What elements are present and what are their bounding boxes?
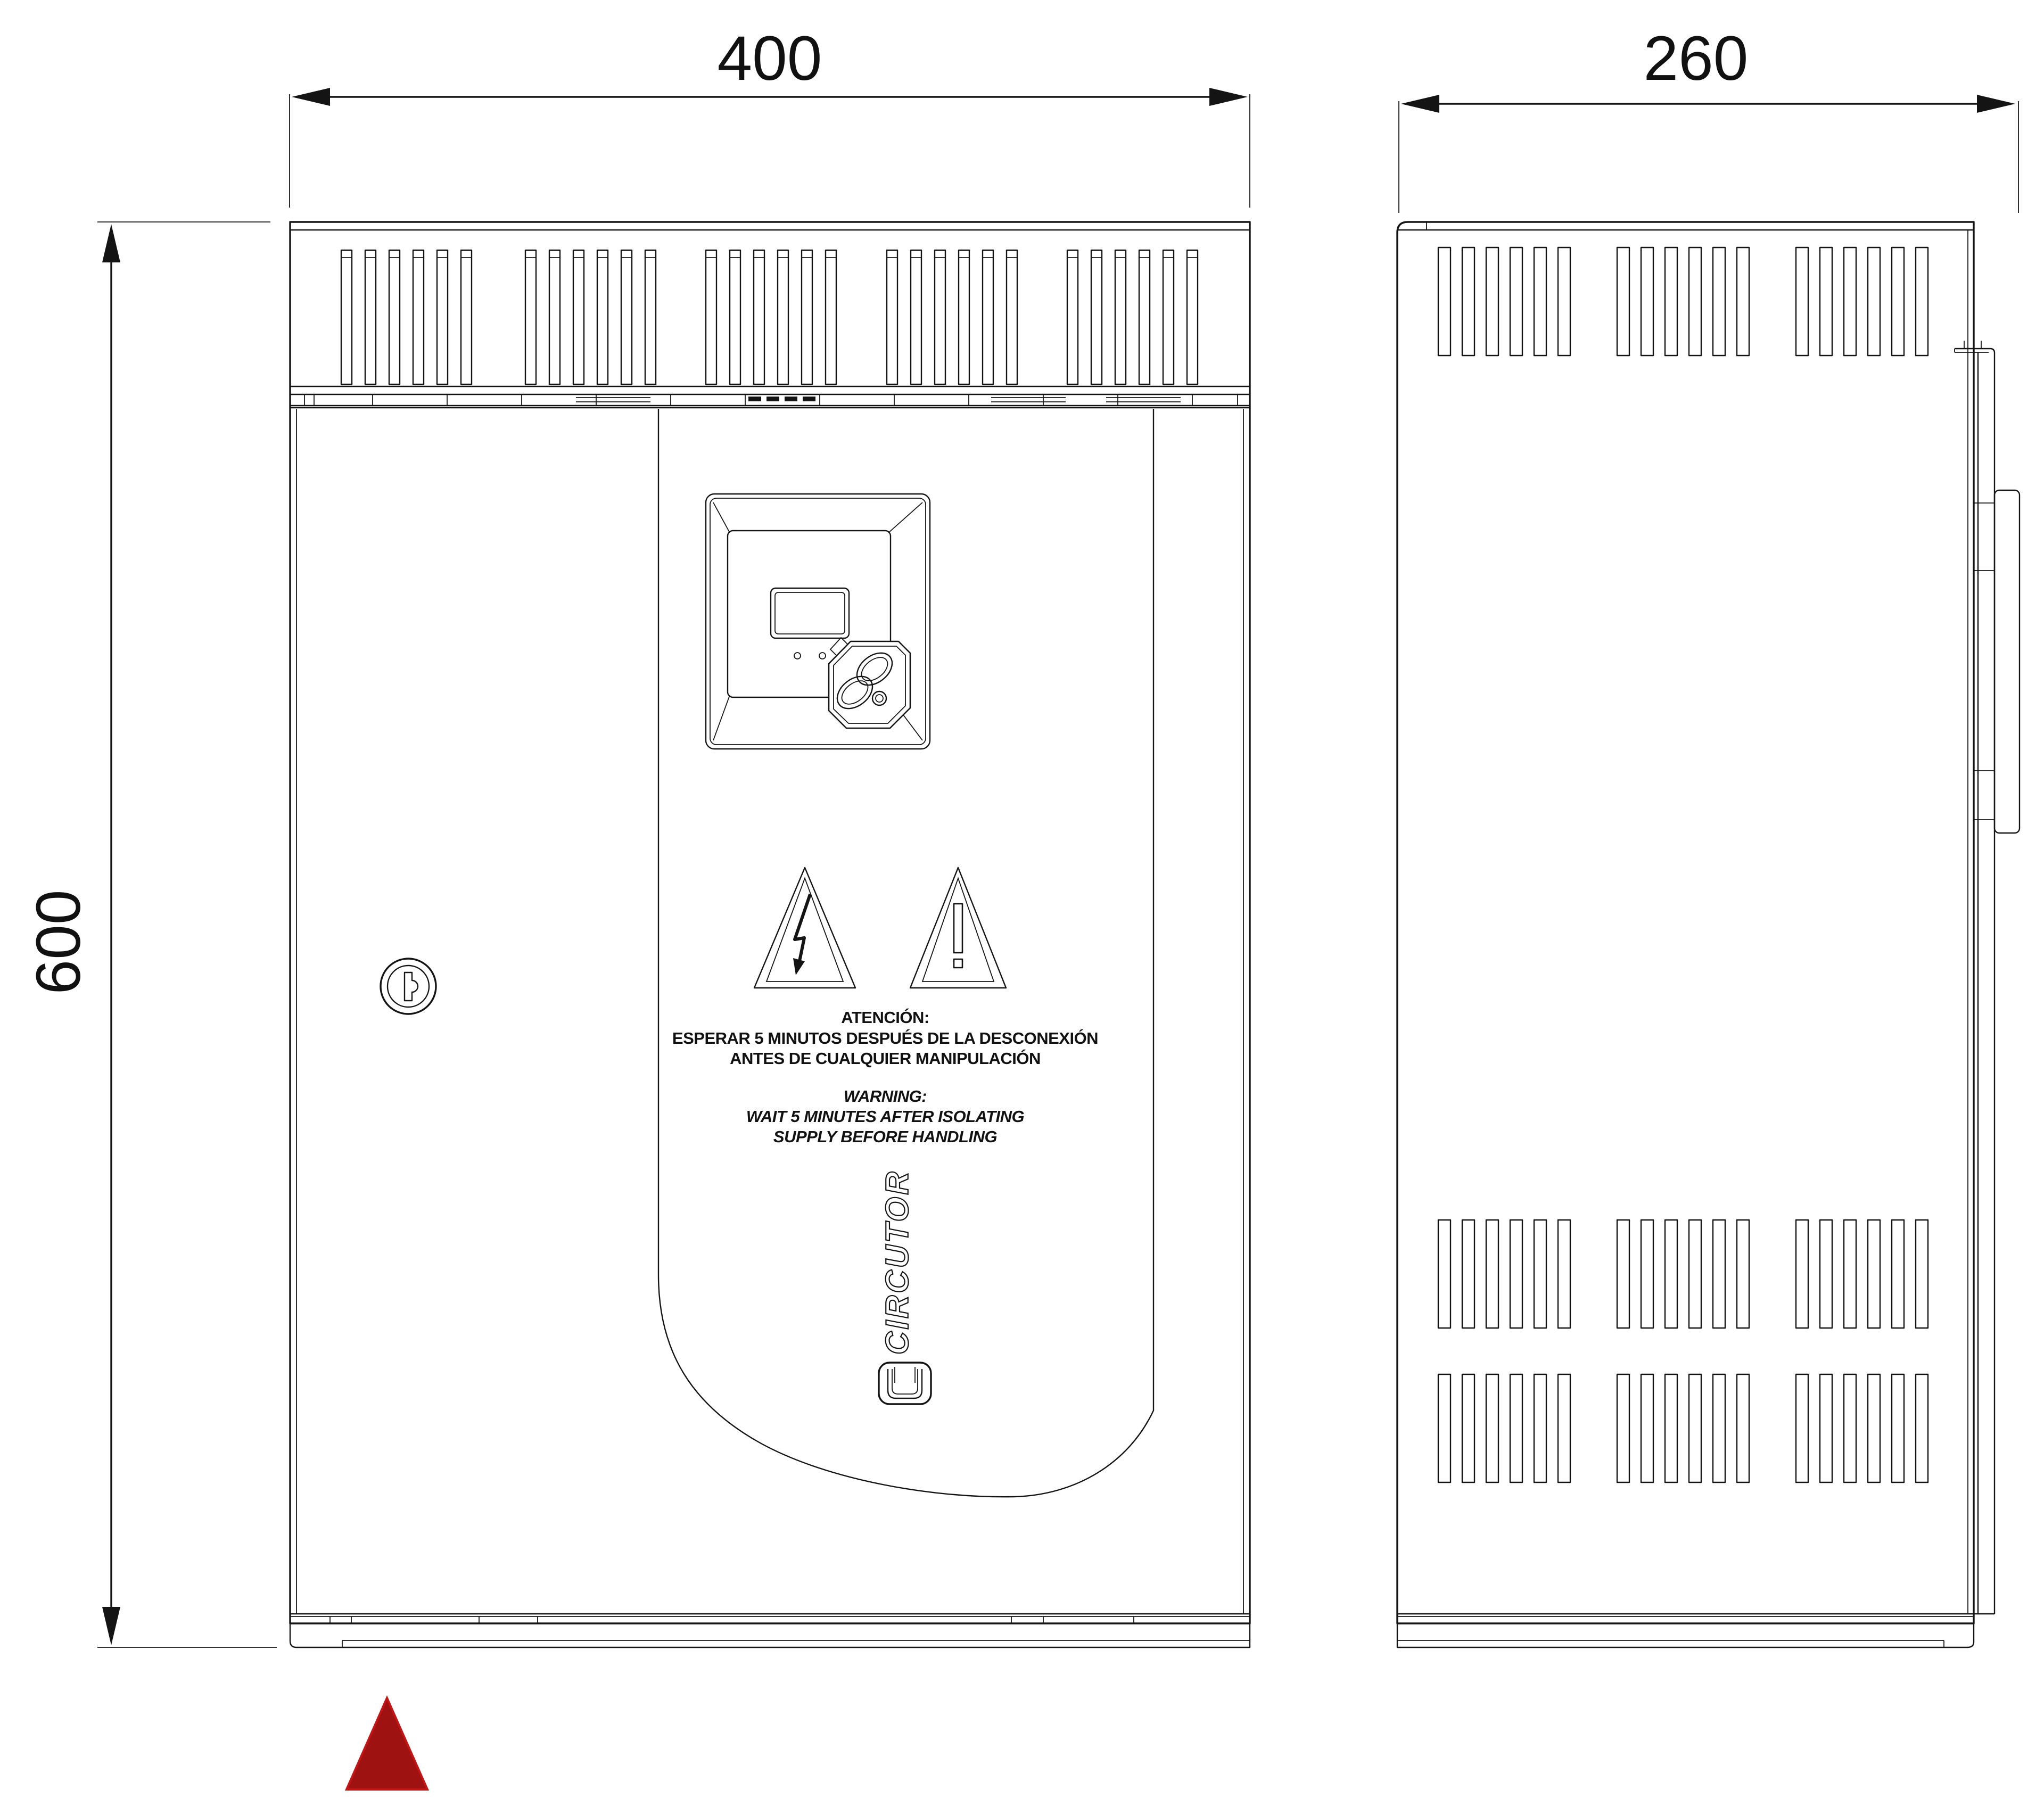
vent-slot bbox=[1534, 1220, 1546, 1328]
vent-slot bbox=[1868, 248, 1880, 356]
side-base bbox=[1397, 1614, 1994, 1647]
warning-text-block: ATENCIÓN: ESPERAR 5 MINUTOS DESPUÉS DE L… bbox=[672, 1008, 1098, 1146]
warning-es-line1: ESPERAR 5 MINUTOS DESPUÉS DE LA DESCONEX… bbox=[672, 1028, 1098, 1048]
arrow-left-icon bbox=[1401, 95, 1439, 113]
exclamation-triangle-icon bbox=[910, 868, 1006, 988]
vent-slot bbox=[1916, 248, 1928, 356]
brand-logo-icon bbox=[879, 1363, 931, 1404]
vent-slot bbox=[1844, 1374, 1856, 1482]
side-outline bbox=[1397, 222, 1974, 1623]
vent-slot bbox=[1665, 1374, 1677, 1482]
vent-slot bbox=[1438, 1374, 1450, 1482]
vent-slot bbox=[730, 250, 740, 384]
front-view: ATENCIÓN: ESPERAR 5 MINUTOS DESPUÉS DE L… bbox=[290, 222, 1250, 1647]
vent-slot bbox=[754, 250, 764, 384]
vent-slot bbox=[437, 250, 448, 384]
vent-slot bbox=[1737, 248, 1749, 356]
warning-en-line1: WAIT 5 MINUTES AFTER ISOLATING bbox=[746, 1107, 1025, 1126]
vent-slot bbox=[1689, 1220, 1701, 1328]
vent-slot bbox=[1713, 248, 1725, 356]
vent-slot bbox=[1916, 1220, 1928, 1328]
vent-slot bbox=[1892, 248, 1904, 356]
vent-slot bbox=[983, 250, 993, 384]
vent-slot bbox=[911, 250, 921, 384]
vent-slot bbox=[1844, 1220, 1856, 1328]
vent-slot bbox=[1868, 1220, 1880, 1328]
vent-slot bbox=[525, 250, 536, 384]
vent-slot bbox=[1091, 250, 1102, 384]
vent-slot bbox=[1820, 1220, 1832, 1328]
front-door bbox=[296, 409, 1243, 1614]
vent-slot bbox=[1844, 248, 1856, 356]
vent-slot bbox=[1820, 1374, 1832, 1482]
vent-slot bbox=[1916, 1374, 1928, 1482]
vent-slot bbox=[1617, 1220, 1629, 1328]
arrow-right-icon bbox=[1977, 95, 2015, 113]
vent-slot bbox=[1438, 248, 1450, 356]
vent-slot bbox=[1438, 1220, 1450, 1328]
vent-slot bbox=[778, 250, 788, 384]
vent-slot bbox=[826, 250, 836, 384]
hinge-strip bbox=[290, 394, 1250, 408]
vent-slot bbox=[1641, 1220, 1653, 1328]
technical-drawing-page: 400 260 600 bbox=[0, 0, 2044, 1798]
vent-slot bbox=[802, 250, 812, 384]
vent-slot bbox=[341, 250, 352, 384]
warning-en-line2: SUPPLY BEFORE HANDLING bbox=[773, 1127, 998, 1146]
vent-slot bbox=[1486, 1220, 1498, 1328]
vent-slot bbox=[1737, 1220, 1749, 1328]
vent-slot bbox=[1510, 1374, 1522, 1482]
arrow-left-icon bbox=[292, 88, 330, 106]
screen-inner bbox=[775, 592, 845, 634]
front-base bbox=[290, 1614, 1250, 1647]
vent-slot bbox=[1534, 248, 1546, 356]
vent-slot bbox=[1868, 1374, 1880, 1482]
arrow-right-icon bbox=[1209, 88, 1248, 106]
vent-slot bbox=[621, 250, 632, 384]
dimension-front-width-label: 400 bbox=[718, 23, 822, 94]
dimension-height-label: 600 bbox=[23, 890, 94, 995]
vent-slot bbox=[1641, 248, 1653, 356]
vent-slot bbox=[1737, 1374, 1749, 1482]
cabinet-dimension-drawing: 400 260 600 bbox=[0, 0, 2044, 1798]
vent-slot bbox=[1187, 250, 1198, 384]
vent-slot bbox=[645, 250, 656, 384]
brand-logo: CIRCUTOR bbox=[879, 1169, 931, 1404]
vent-slot bbox=[706, 250, 716, 384]
side-view bbox=[1397, 222, 2020, 1647]
dimension-height: 600 bbox=[23, 222, 277, 1647]
dimension-side-depth-label: 260 bbox=[1644, 23, 1749, 94]
vent-slot bbox=[461, 250, 472, 384]
vent-slot bbox=[1007, 250, 1017, 384]
vent-slot bbox=[389, 250, 400, 384]
vent-slot bbox=[1665, 1220, 1677, 1328]
vent-slot bbox=[1617, 248, 1629, 356]
vent-slot bbox=[1665, 248, 1677, 356]
warning-en-title: WARNING: bbox=[844, 1087, 927, 1106]
vent-slot bbox=[1510, 1220, 1522, 1328]
vent-slot bbox=[1486, 1374, 1498, 1482]
vent-slot bbox=[1713, 1374, 1725, 1482]
vent-slot bbox=[549, 250, 560, 384]
vent-slot bbox=[1534, 1374, 1546, 1482]
plinth-outline bbox=[1397, 1623, 1974, 1647]
vent-slot bbox=[413, 250, 424, 384]
keyhole-icon bbox=[381, 959, 436, 1014]
vent-slot bbox=[365, 250, 376, 384]
vent-slot bbox=[887, 250, 897, 384]
warning-es-line2: ANTES DE CUALQUIER MANIPULACIÓN bbox=[730, 1049, 1041, 1068]
vent-slot bbox=[1892, 1220, 1904, 1328]
arrow-up-icon bbox=[102, 224, 120, 262]
vent-slot bbox=[1115, 250, 1126, 384]
vent-slot bbox=[1067, 250, 1078, 384]
strip-vent-dashes bbox=[748, 397, 815, 401]
vent-slot bbox=[959, 250, 969, 384]
dimension-front-width: 400 bbox=[290, 23, 1250, 208]
vent-slot bbox=[1641, 1374, 1653, 1482]
vent-slot bbox=[1558, 248, 1570, 356]
vent-slot bbox=[1617, 1374, 1629, 1482]
vent-slot bbox=[1689, 248, 1701, 356]
vent-slot bbox=[1713, 1220, 1725, 1328]
screen-outer bbox=[771, 588, 849, 638]
brand-logo-text: CIRCUTOR bbox=[879, 1169, 915, 1355]
lightning-triangle-icon bbox=[754, 868, 855, 988]
strip-hinge-marks bbox=[576, 398, 1181, 402]
arrow-down-icon bbox=[102, 1607, 120, 1645]
vent-slot bbox=[1820, 248, 1832, 356]
vent-slot bbox=[935, 250, 945, 384]
side-vent-grid-middle-1 bbox=[1438, 1220, 1928, 1328]
base-strip-ticks bbox=[330, 1616, 1134, 1623]
front-vent-grid bbox=[341, 250, 1198, 384]
vent-slot bbox=[573, 250, 584, 384]
dimension-side-depth: 260 bbox=[1399, 23, 2018, 213]
vent-slot bbox=[1558, 1374, 1570, 1482]
vent-slot bbox=[1558, 1220, 1570, 1328]
side-terminal-block bbox=[1974, 490, 2020, 833]
vent-slot bbox=[1163, 250, 1174, 384]
warning-es-title: ATENCIÓN: bbox=[841, 1008, 929, 1027]
display-panel bbox=[706, 494, 930, 749]
vent-slot bbox=[1796, 1374, 1808, 1482]
cabinet-outline bbox=[290, 222, 1250, 1623]
vent-slot bbox=[1462, 1220, 1474, 1328]
side-vent-grid-top bbox=[1438, 248, 1928, 356]
red-triangle-marker bbox=[347, 1698, 427, 1789]
vent-slot bbox=[1689, 1374, 1701, 1482]
vent-slot bbox=[1139, 250, 1150, 384]
vent-slot bbox=[1486, 248, 1498, 356]
vent-slot bbox=[1892, 1374, 1904, 1482]
vent-slot bbox=[1796, 1220, 1808, 1328]
side-vent-grid-middle-2 bbox=[1438, 1374, 1928, 1482]
vent-slot bbox=[1462, 248, 1474, 356]
vent-slot bbox=[1462, 1374, 1474, 1482]
connector-plate bbox=[829, 638, 910, 728]
vent-slot bbox=[597, 250, 608, 384]
plinth-outline bbox=[290, 1623, 1250, 1647]
led-icon bbox=[819, 653, 826, 659]
led-icon bbox=[794, 653, 801, 659]
vent-slot bbox=[1510, 248, 1522, 356]
vent-slot bbox=[1796, 248, 1808, 356]
